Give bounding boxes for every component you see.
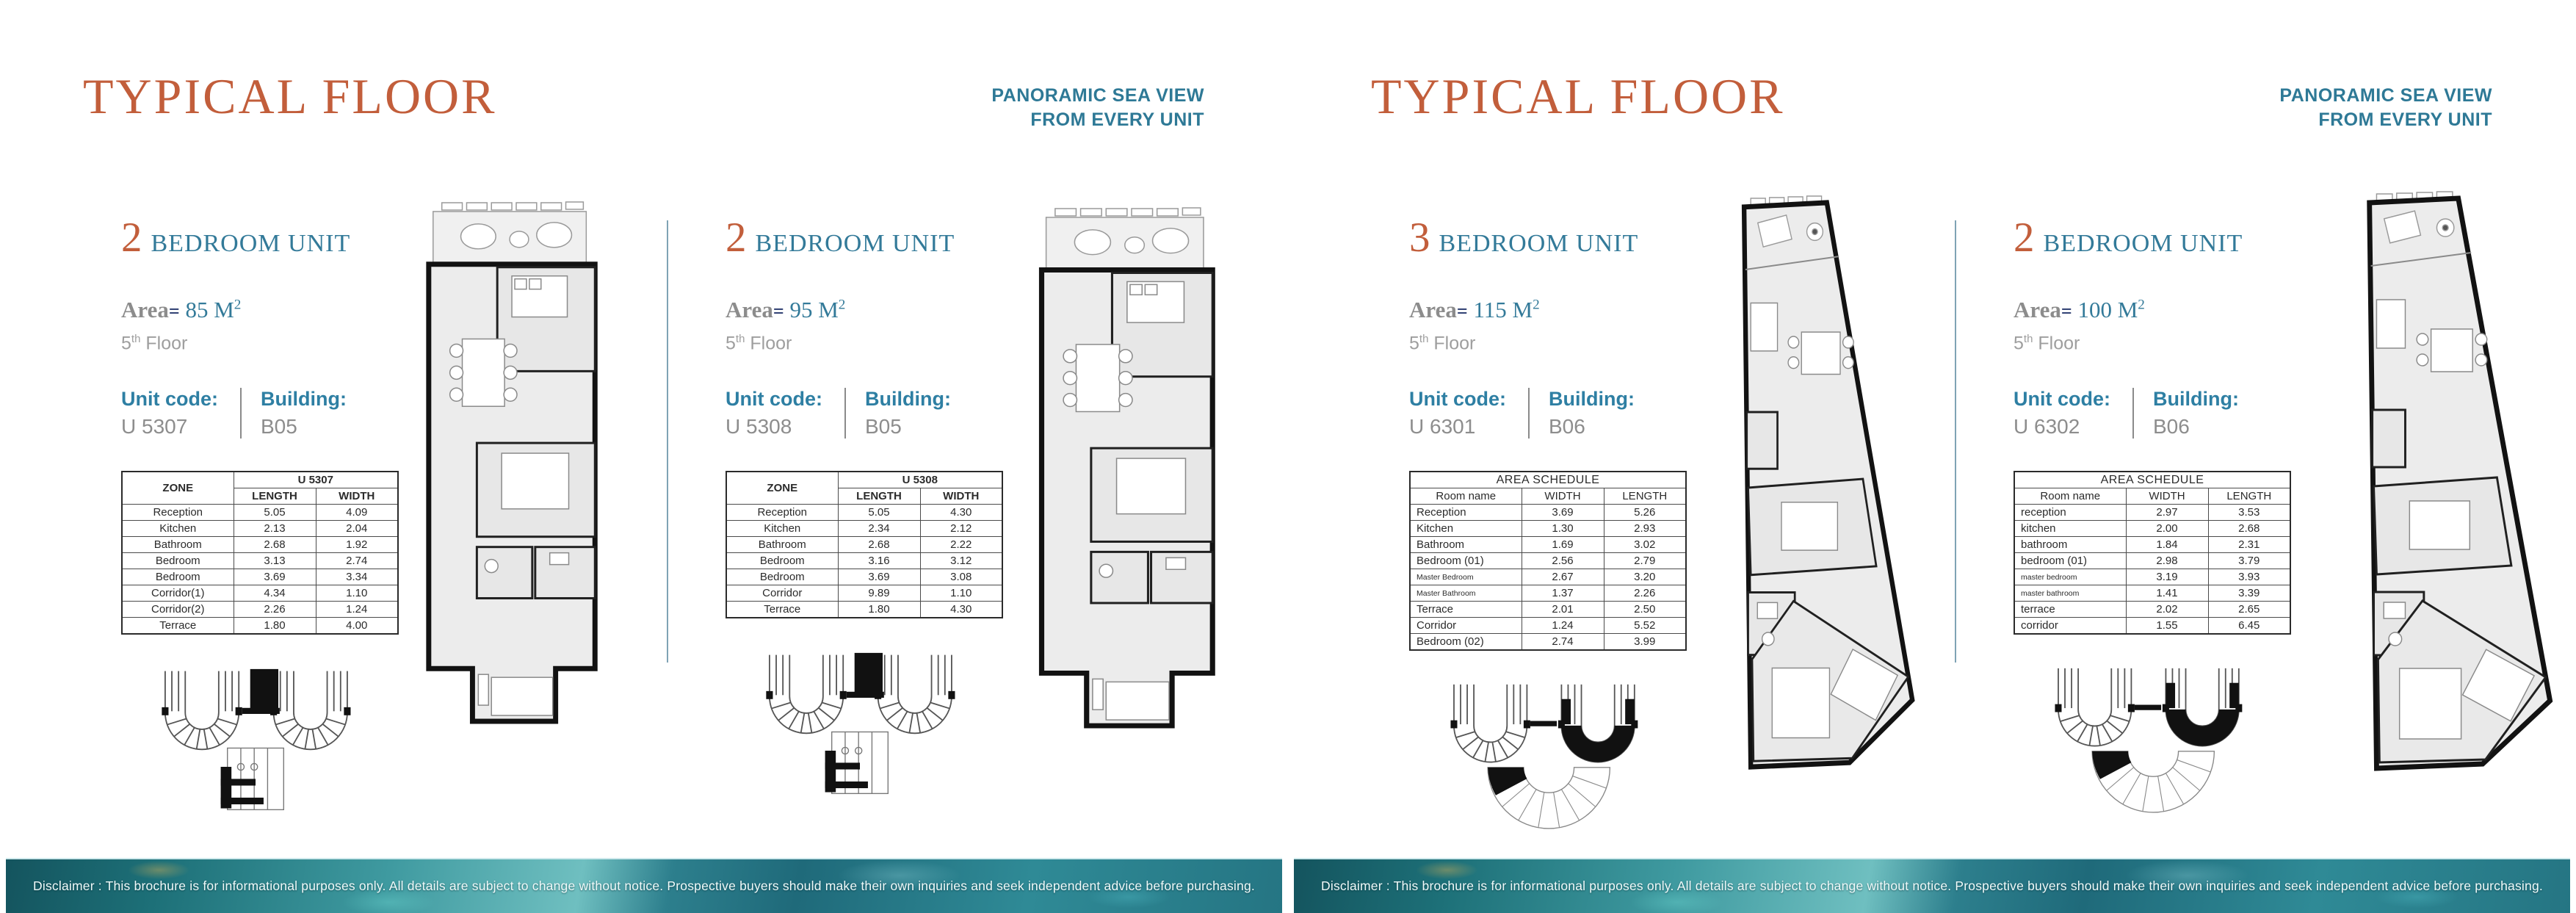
table-cell: Bedroom <box>122 553 234 569</box>
building-location-diagram <box>2034 646 2262 819</box>
code-row: Unit code: U 5307 Building: B05 <box>121 388 415 439</box>
code-divider <box>844 388 846 439</box>
table-cell: master bathroom <box>2014 585 2126 602</box>
unit-code-label: Unit code: <box>121 388 240 411</box>
floor-plan-drawing <box>1024 206 1241 732</box>
unit-title: 2 BEDROOM UNIT <box>121 217 415 259</box>
unit-code-label: Unit code: <box>2014 388 2132 411</box>
table-cell: 3.20 <box>1604 569 1686 585</box>
brochure-page-right: TYPICAL FLOOR PANORAMIC SEA VIEW FROM EV… <box>1288 0 2576 912</box>
table-cell: 4.30 <box>920 602 1002 618</box>
table-row: kitchen2.002.68 <box>2014 521 2290 537</box>
building-value: B06 <box>1549 415 1635 439</box>
code-divider <box>240 388 242 439</box>
building-label: Building: <box>2153 388 2239 411</box>
table-cell: 2.02 <box>2126 602 2208 618</box>
unit-type-label: BEDROOM UNIT <box>2044 230 2243 258</box>
table-row: Terrace1.804.30 <box>726 602 1002 618</box>
table-cell: 1.37 <box>1522 585 1604 602</box>
table-cell: Bedroom <box>726 553 838 569</box>
table-cell: 3.69 <box>838 569 920 585</box>
table-cell: 2.04 <box>316 521 398 537</box>
table-cell: 3.12 <box>920 553 1002 569</box>
table-row: Kitchen1.302.93 <box>1410 521 1686 537</box>
table-cell: 3.69 <box>1522 505 1604 521</box>
table-cell: 2.97 <box>2126 505 2208 521</box>
table-cell: 2.79 <box>1604 553 1686 569</box>
area-schedule-table: AREA SCHEDULE Room nameWIDTHLENGTH recep… <box>2014 471 2291 635</box>
unit-code-label: Unit code: <box>726 388 844 411</box>
table-cell: reception <box>2014 505 2126 521</box>
table-row: Master Bedroom2.673.20 <box>1410 569 1686 585</box>
table-row: reception2.973.53 <box>2014 505 2290 521</box>
table-cell: 2.01 <box>1522 602 1604 618</box>
table-cell: 2.34 <box>838 521 920 537</box>
table-cell: Corridor(2) <box>122 602 234 618</box>
table-row: Bedroom3.693.34 <box>122 569 398 585</box>
table-cell: 5.52 <box>1604 618 1686 634</box>
table-row: master bedroom3.193.93 <box>2014 569 2290 585</box>
table-row: Corridor(2)2.261.24 <box>122 602 398 618</box>
table-row: bathroom1.842.31 <box>2014 537 2290 553</box>
table-cell: Bathroom <box>1410 537 1522 553</box>
dimensions-table: ZONEU 5308 LENGTHWIDTH Reception5.054.30… <box>726 471 1003 618</box>
brochure-page-left: TYPICAL FLOOR PANORAMIC SEA VIEW FROM EV… <box>0 0 1288 912</box>
table-cell: 1.24 <box>316 602 398 618</box>
table-cell: 2.74 <box>1522 634 1604 651</box>
table-row: Bathroom2.681.92 <box>122 537 398 553</box>
floor-plan-drawing <box>2331 190 2567 777</box>
unit-code-value: U 5307 <box>121 415 240 439</box>
table-row: Bedroom (01)2.562.79 <box>1410 553 1686 569</box>
sea-view-line1: PANORAMIC SEA VIEW <box>2279 84 2492 108</box>
table-row: Kitchen2.132.04 <box>122 521 398 537</box>
table-row: master bathroom1.413.39 <box>2014 585 2290 602</box>
sea-view-tagline: PANORAMIC SEA VIEW FROM EVERY UNIT <box>2279 84 2492 132</box>
table-cell: 2.67 <box>1522 569 1604 585</box>
table-cell: 4.34 <box>234 585 316 602</box>
bedroom-count: 3 <box>1409 217 1430 259</box>
table-cell: 4.00 <box>316 618 398 635</box>
table-cell: 3.39 <box>2208 585 2290 602</box>
dimensions-table: ZONEU 5307 LENGTHWIDTH Reception5.054.09… <box>121 471 399 635</box>
table-row: Bedroom3.163.12 <box>726 553 1002 569</box>
unit-type-label: BEDROOM UNIT <box>151 230 351 258</box>
table-cell: Terrace <box>726 602 838 618</box>
table-row: bedroom (01)2.983.79 <box>2014 553 2290 569</box>
floor-line: 5th Floor <box>1409 333 1703 354</box>
table-cell: Bedroom <box>122 569 234 585</box>
table-cell: Corridor <box>1410 618 1522 634</box>
column-divider <box>667 220 668 663</box>
table-cell: 2.22 <box>920 537 1002 553</box>
table-cell: master bedroom <box>2014 569 2126 585</box>
disclaimer-strip: Disclaimer : This brochure is for inform… <box>6 858 1282 913</box>
bedroom-count: 2 <box>2014 217 2035 259</box>
building-value: B06 <box>2153 415 2239 439</box>
building-label: Building: <box>865 388 951 411</box>
table-cell: 5.26 <box>1604 505 1686 521</box>
unit-block: 2 BEDROOM UNIT Area= 100 M2 5th Floor Un… <box>2014 217 2307 819</box>
area-line: Area= 95 M2 <box>726 297 1019 323</box>
table-cell: 2.65 <box>2208 602 2290 618</box>
unit-code-value: U 6301 <box>1409 415 1528 439</box>
table-cell: 1.80 <box>234 618 316 635</box>
code-row: Unit code: U 6301 Building: B06 <box>1409 388 1703 439</box>
unit-code-label: Unit code: <box>1409 388 1528 411</box>
table-row: Terrace2.012.50 <box>1410 602 1686 618</box>
unit-title: 3 BEDROOM UNIT <box>1409 217 1703 259</box>
building-label: Building: <box>1549 388 1635 411</box>
table-row: Bathroom1.693.02 <box>1410 537 1686 553</box>
table-cell: corridor <box>2014 618 2126 635</box>
table-cell: 3.34 <box>316 569 398 585</box>
table-cell: 2.26 <box>234 602 316 618</box>
area-line: Area= 100 M2 <box>2014 297 2307 323</box>
table-cell: 2.26 <box>1604 585 1686 602</box>
table-cell: terrace <box>2014 602 2126 618</box>
table-cell: 1.80 <box>838 602 920 618</box>
table-cell: 2.31 <box>2208 537 2290 553</box>
disclaimer-text: Disclaimer : This brochure is for inform… <box>1321 878 2543 894</box>
sea-view-line1: PANORAMIC SEA VIEW <box>991 84 1204 108</box>
table-cell: 3.19 <box>2126 569 2208 585</box>
bedroom-count: 2 <box>121 217 142 259</box>
unit-title: 2 BEDROOM UNIT <box>726 217 1019 259</box>
sea-view-tagline: PANORAMIC SEA VIEW FROM EVERY UNIT <box>991 84 1204 132</box>
table-cell: 5.05 <box>234 505 316 521</box>
area-line: Area= 85 M2 <box>121 297 415 323</box>
table-cell: bedroom (01) <box>2014 553 2126 569</box>
building-value: B05 <box>261 415 347 439</box>
table-cell: 3.99 <box>1604 634 1686 651</box>
code-divider <box>1528 388 1530 439</box>
table-row: Corridor(1)4.341.10 <box>122 585 398 602</box>
table-cell: 2.68 <box>838 537 920 553</box>
table-cell: 2.12 <box>920 521 1002 537</box>
disclaimer-text: Disclaimer : This brochure is for inform… <box>33 878 1255 894</box>
table-row: Bathroom2.682.22 <box>726 537 1002 553</box>
table-cell: 3.02 <box>1604 537 1686 553</box>
unit-title: 2 BEDROOM UNIT <box>2014 217 2307 259</box>
unit-type-label: BEDROOM UNIT <box>756 230 955 258</box>
table-cell: Kitchen <box>726 521 838 537</box>
table-cell: 2.13 <box>234 521 316 537</box>
table-cell: 2.93 <box>1604 521 1686 537</box>
table-cell: 1.24 <box>1522 618 1604 634</box>
table-cell: 2.00 <box>2126 521 2208 537</box>
area-line: Area= 115 M2 <box>1409 297 1703 323</box>
table-cell: 1.84 <box>2126 537 2208 553</box>
code-divider <box>2132 388 2134 439</box>
code-row: Unit code: U 5308 Building: B05 <box>726 388 1019 439</box>
table-cell: Terrace <box>122 618 234 635</box>
unit-type-label: BEDROOM UNIT <box>1439 230 1639 258</box>
building-label: Building: <box>261 388 347 411</box>
table-cell: 2.56 <box>1522 553 1604 569</box>
table-cell: 2.50 <box>1604 602 1686 618</box>
table-cell: 1.92 <box>316 537 398 553</box>
table-cell: Master Bathroom <box>1410 585 1522 602</box>
table-cell: Master Bedroom <box>1410 569 1522 585</box>
table-row: Corridor9.891.10 <box>726 585 1002 602</box>
table-row: Bedroom3.693.08 <box>726 569 1002 585</box>
table-cell: 3.93 <box>2208 569 2290 585</box>
table-cell: 2.68 <box>234 537 316 553</box>
table-cell: 3.69 <box>234 569 316 585</box>
table-row: Master Bathroom1.372.26 <box>1410 585 1686 602</box>
column-divider <box>1955 220 1956 663</box>
building-location-diagram <box>142 646 369 819</box>
table-cell: 3.16 <box>838 553 920 569</box>
building-value: B05 <box>865 415 951 439</box>
table-row: Bedroom3.132.74 <box>122 553 398 569</box>
table-row: corridor1.556.45 <box>2014 618 2290 635</box>
table-cell: 3.13 <box>234 553 316 569</box>
table-row: Reception5.054.09 <box>122 505 398 521</box>
table-cell: 2.98 <box>2126 553 2208 569</box>
unit-code-value: U 6302 <box>2014 415 2132 439</box>
table-cell: 1.69 <box>1522 537 1604 553</box>
table-row: Reception5.054.30 <box>726 505 1002 521</box>
area-schedule-table: AREA SCHEDULE Room nameWIDTHLENGTH Recep… <box>1409 471 1687 651</box>
floor-plan-drawing <box>411 200 623 727</box>
table-cell: Kitchen <box>1410 521 1522 537</box>
table-cell: 1.55 <box>2126 618 2208 635</box>
table-cell: Corridor <box>726 585 838 602</box>
table-cell: 3.79 <box>2208 553 2290 569</box>
table-row: Reception3.695.26 <box>1410 505 1686 521</box>
table-cell: Bathroom <box>122 537 234 553</box>
bedroom-count: 2 <box>726 217 747 259</box>
table-cell: Corridor(1) <box>122 585 234 602</box>
table-row: Bedroom (02)2.743.99 <box>1410 634 1686 651</box>
table-cell: Bedroom (02) <box>1410 634 1522 651</box>
page-title: TYPICAL FLOOR <box>1371 68 1785 126</box>
table-cell: Kitchen <box>122 521 234 537</box>
floor-line: 5th Floor <box>121 333 415 354</box>
table-row: Kitchen2.342.12 <box>726 521 1002 537</box>
table-cell: 5.05 <box>838 505 920 521</box>
table-row: Terrace1.804.00 <box>122 618 398 635</box>
table-cell: 4.09 <box>316 505 398 521</box>
table-cell: 2.68 <box>2208 521 2290 537</box>
sea-view-line2: FROM EVERY UNIT <box>2279 108 2492 132</box>
table-row: Corridor1.245.52 <box>1410 618 1686 634</box>
unit-block: 3 BEDROOM UNIT Area= 115 M2 5th Floor Un… <box>1409 217 1703 835</box>
table-cell: kitchen <box>2014 521 2126 537</box>
table-cell: 4.30 <box>920 505 1002 521</box>
unit-block: 2 BEDROOM UNIT Area= 85 M2 5th Floor Uni… <box>121 217 415 819</box>
table-cell: 3.53 <box>2208 505 2290 521</box>
unit-block: 2 BEDROOM UNIT Area= 95 M2 5th Floor Uni… <box>726 217 1019 803</box>
table-cell: Bathroom <box>726 537 838 553</box>
table-cell: Bedroom (01) <box>1410 553 1522 569</box>
floor-plan-drawing <box>1708 194 1928 776</box>
disclaimer-strip: Disclaimer : This brochure is for inform… <box>1294 858 2570 913</box>
table-cell: 2.74 <box>316 553 398 569</box>
table-row: terrace2.022.65 <box>2014 602 2290 618</box>
unit-code-value: U 5308 <box>726 415 844 439</box>
building-location-diagram <box>1430 663 1657 835</box>
table-cell: 1.10 <box>920 585 1002 602</box>
table-cell: 9.89 <box>838 585 920 602</box>
table-cell: Reception <box>122 505 234 521</box>
floor-line: 5th Floor <box>726 333 1019 354</box>
table-cell: Terrace <box>1410 602 1522 618</box>
sea-view-line2: FROM EVERY UNIT <box>991 108 1204 132</box>
floor-line: 5th Floor <box>2014 333 2307 354</box>
building-location-diagram <box>746 630 974 803</box>
table-cell: 1.10 <box>316 585 398 602</box>
table-cell: Reception <box>726 505 838 521</box>
table-cell: 1.41 <box>2126 585 2208 602</box>
table-cell: 1.30 <box>1522 521 1604 537</box>
table-cell: Bedroom <box>726 569 838 585</box>
table-cell: Reception <box>1410 505 1522 521</box>
table-cell: 6.45 <box>2208 618 2290 635</box>
page-title: TYPICAL FLOOR <box>83 68 497 126</box>
code-row: Unit code: U 6302 Building: B06 <box>2014 388 2307 439</box>
table-cell: bathroom <box>2014 537 2126 553</box>
table-cell: 3.08 <box>920 569 1002 585</box>
